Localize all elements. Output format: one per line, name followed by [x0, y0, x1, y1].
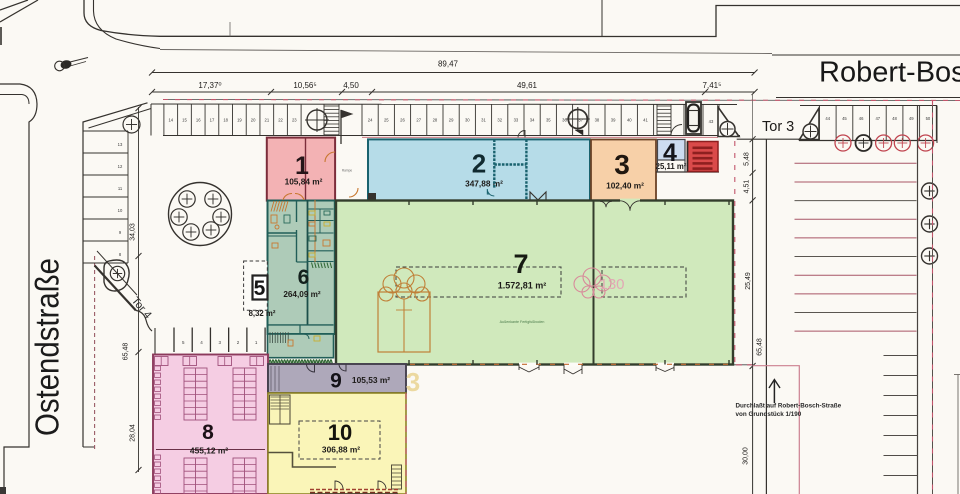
svg-text:17,37⁰: 17,37⁰ [198, 81, 221, 90]
svg-text:5: 5 [254, 277, 266, 300]
svg-text:11: 11 [118, 186, 123, 191]
svg-text:23: 23 [292, 118, 297, 123]
svg-text:45: 45 [842, 116, 847, 121]
svg-text:37: 37 [578, 118, 583, 123]
svg-text:10: 10 [328, 420, 352, 445]
svg-text:347,88 m²: 347,88 m² [465, 178, 503, 188]
svg-text:38: 38 [595, 118, 600, 123]
svg-text:Durchlaßt auf Robert-Bosch-Str: Durchlaßt auf Robert-Bosch-Straße [736, 403, 842, 410]
svg-text:25,11 m²: 25,11 m² [656, 162, 687, 171]
svg-text:65,48: 65,48 [123, 343, 130, 361]
svg-text:47: 47 [875, 116, 880, 121]
svg-text:3: 3 [406, 367, 420, 397]
svg-text:15: 15 [182, 118, 187, 123]
svg-text:von Grundstück 1/190: von Grundstück 1/190 [736, 411, 802, 418]
svg-text:27: 27 [416, 118, 421, 123]
svg-text:24: 24 [368, 118, 373, 123]
svg-text:2: 2 [472, 149, 486, 179]
svg-text:28: 28 [433, 118, 438, 123]
svg-text:4,51: 4,51 [744, 180, 751, 194]
svg-text:43: 43 [709, 119, 714, 124]
svg-text:9: 9 [330, 370, 342, 393]
svg-text:21: 21 [265, 118, 270, 123]
svg-text:41: 41 [643, 118, 648, 123]
svg-text:33: 33 [514, 118, 519, 123]
svg-text:13: 13 [118, 142, 123, 147]
svg-text:34: 34 [530, 118, 535, 123]
svg-text:29: 29 [449, 118, 454, 123]
svg-text:17: 17 [210, 118, 215, 123]
svg-text:35: 35 [546, 118, 551, 123]
svg-text:46: 46 [859, 116, 864, 121]
svg-text:25,49: 25,49 [745, 272, 752, 290]
svg-text:264,09 m²: 264,09 m² [283, 290, 321, 299]
svg-text:1.572,81 m²: 1.572,81 m² [498, 281, 547, 291]
svg-text:4,50: 4,50 [343, 81, 359, 90]
svg-text:40: 40 [627, 118, 632, 123]
svg-text:48: 48 [892, 116, 897, 121]
svg-text:7,41⁵: 7,41⁵ [703, 81, 722, 90]
svg-text:8,32 m²: 8,32 m² [249, 309, 276, 318]
svg-text:3: 3 [614, 149, 630, 180]
svg-text:130: 130 [599, 276, 624, 293]
svg-text:102,40 m²: 102,40 m² [606, 181, 644, 191]
svg-text:306,88 m²: 306,88 m² [322, 445, 360, 455]
svg-text:25: 25 [384, 118, 389, 123]
svg-text:44: 44 [825, 116, 830, 121]
svg-text:30,00: 30,00 [743, 447, 750, 465]
svg-text:28,04: 28,04 [130, 424, 137, 442]
svg-text:6: 6 [298, 266, 310, 289]
svg-text:49: 49 [909, 116, 914, 121]
svg-text:18: 18 [223, 118, 228, 123]
svg-text:Rampe: Rampe [342, 169, 353, 173]
svg-text:65,48: 65,48 [757, 338, 764, 356]
svg-text:50: 50 [926, 116, 931, 121]
svg-text:14: 14 [168, 118, 173, 123]
svg-text:105,53 m²: 105,53 m² [352, 375, 390, 385]
svg-text:10: 10 [118, 208, 123, 213]
svg-text:89,47: 89,47 [438, 60, 459, 69]
svg-text:34,03: 34,03 [130, 223, 137, 241]
svg-text:5,48: 5,48 [744, 152, 751, 166]
svg-text:7: 7 [513, 249, 528, 279]
svg-text:Robert-Bos: Robert-Bos [819, 57, 960, 89]
svg-text:455,12 m²: 455,12 m² [190, 446, 228, 456]
svg-text:Ostendstraße: Ostendstraße [29, 258, 66, 436]
svg-text:Tor 3: Tor 3 [762, 119, 794, 135]
svg-text:Außenkante Fertigfußboden: Außenkante Fertigfußboden [500, 320, 545, 324]
svg-text:49,61: 49,61 [517, 81, 538, 90]
svg-text:30: 30 [465, 118, 470, 123]
svg-text:19: 19 [237, 118, 242, 123]
svg-text:36: 36 [562, 118, 567, 123]
svg-text:31: 31 [481, 118, 486, 123]
svg-text:39: 39 [611, 118, 616, 123]
svg-text:32: 32 [497, 118, 502, 123]
svg-text:16: 16 [196, 118, 201, 123]
svg-text:12: 12 [118, 164, 123, 169]
svg-text:22: 22 [278, 118, 283, 123]
svg-text:10,56⁵: 10,56⁵ [293, 81, 316, 90]
svg-text:26: 26 [400, 118, 405, 123]
svg-text:8: 8 [202, 421, 214, 444]
svg-text:105,84 m²: 105,84 m² [285, 176, 323, 186]
svg-text:20: 20 [251, 118, 256, 123]
